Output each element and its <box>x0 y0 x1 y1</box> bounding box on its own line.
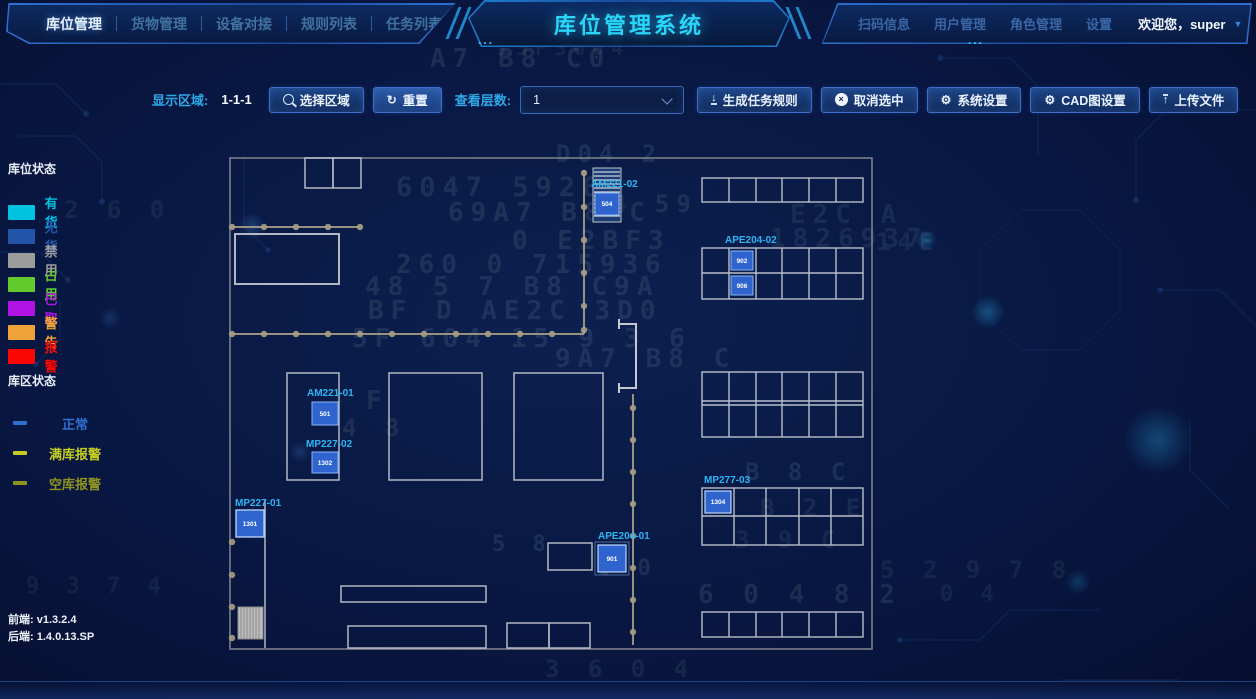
location-label-am221-02: AM221-02 <box>591 179 638 190</box>
chevron-down-icon <box>661 93 672 104</box>
nav-item-settings[interactable]: 设置 <box>1074 14 1124 33</box>
welcome-user-label: 欢迎您，super <box>1124 14 1233 33</box>
slot-box-501[interactable]: 501 <box>312 402 338 425</box>
cancel-circle-icon: × <box>835 93 848 106</box>
svg-text:902: 902 <box>737 258 748 265</box>
line-swatch <box>13 481 27 485</box>
gear-icon: ⚙ <box>1044 94 1055 106</box>
generate-task-rule-button[interactable]: ↓ 生成任务规则 <box>697 87 812 113</box>
bench-long-a <box>341 586 486 602</box>
door-bracket <box>619 319 636 393</box>
header-left-nav-panel: 库位管理 货物管理 设备对接 规则列表 任务列表 <box>6 3 458 44</box>
location-label-mp277-03: MP277-03 <box>704 475 751 486</box>
rack-row-bottom <box>702 612 863 637</box>
backend-version: 后端: 1.4.0.13.SP <box>8 629 94 646</box>
color-swatch <box>8 205 35 220</box>
svg-text:1302: 1302 <box>318 460 333 467</box>
svg-text:501: 501 <box>320 411 331 418</box>
footer-strip <box>0 681 1256 699</box>
header-dots-decor: ... <box>478 33 494 47</box>
download-icon: ↓ <box>711 94 717 106</box>
upload-icon: ↑ <box>1163 94 1169 106</box>
version-info: 前端: v1.3.2.4 后端: 1.4.0.13.SP <box>8 612 94 646</box>
room-center-c <box>514 373 603 480</box>
nav-item-role-management[interactable]: 角色管理 <box>998 14 1074 33</box>
slot-status-legend: 库位状态 有货 无货 禁用 占用 已取 警告 报警 <box>8 160 56 177</box>
nav-item-slot-management[interactable]: 库位管理 <box>32 14 116 34</box>
color-swatch <box>8 349 35 364</box>
legend-item-zone-empty-alarm: 空库报警 <box>8 472 123 494</box>
bench-square-a <box>507 623 549 648</box>
slot-box-504[interactable]: 504 <box>595 193 619 215</box>
header-right-nav-panel: 扫码信息 用户管理 角色管理 设置 欢迎您，super ▼ <box>806 3 1252 44</box>
nav-item-user-management[interactable]: 用户管理 <box>922 14 998 33</box>
gear-icon: ⚙ <box>941 94 952 106</box>
color-swatch <box>8 253 35 268</box>
location-label-mp227-02: MP227-02 <box>306 439 353 450</box>
view-layers-label: 查看层数: <box>455 90 511 109</box>
color-swatch <box>8 301 35 316</box>
svg-text:906: 906 <box>737 283 748 290</box>
warehouse-management-screen: { "header": { "title": "库位管理系统", "dots":… <box>0 0 1256 699</box>
location-label-ape204-01: APE204-01 <box>598 531 650 542</box>
warehouse-floor-plan[interactable]: 504 AM221-02 MP227-01 1301 AM221-01 501 … <box>228 156 874 652</box>
legend-item-zone-full-alarm: 满库报警 <box>8 442 123 464</box>
header-bar: 库位管理 货物管理 设备对接 规则列表 任务列表 库位管理系统 ... ... … <box>0 0 1256 48</box>
slot-box-901[interactable]: 901 <box>595 542 629 575</box>
display-area-label: 显示区域: <box>152 90 208 109</box>
nav-item-rule-list[interactable]: 规则列表 <box>287 14 371 34</box>
refresh-icon: ↻ <box>387 94 397 106</box>
room-top-left-a <box>305 158 333 188</box>
location-label-am221-01: AM221-01 <box>307 388 354 399</box>
toolbar: 显示区域: 1-1-1 选择区域 ↻ 重置 查看层数: 1 ↓ 生成任务规则 ×… <box>152 86 1238 113</box>
slot-box-902[interactable]: 902 <box>731 251 753 270</box>
location-label-ape204-02: APE204-02 <box>725 235 777 246</box>
bench-square-c <box>548 543 592 570</box>
slot-box-1302[interactable]: 1302 <box>312 452 338 473</box>
display-area-value: 1-1-1 <box>221 92 251 107</box>
rack-grid-ape204-02 <box>702 248 863 299</box>
nav-item-task-list[interactable]: 任务列表 <box>372 14 456 34</box>
color-swatch <box>8 277 35 292</box>
nav-item-device-docking[interactable]: 设备对接 <box>202 14 286 34</box>
room-top-left-b <box>333 158 361 188</box>
line-swatch <box>13 421 27 425</box>
cancel-selection-button[interactable]: × 取消选中 <box>821 87 918 113</box>
location-label-mp227-01: MP227-01 <box>235 498 282 509</box>
svg-text:504: 504 <box>602 201 613 208</box>
bench-long-b <box>348 626 486 648</box>
nav-item-scan-info[interactable]: 扫码信息 <box>846 14 922 33</box>
rack-row-top <box>702 178 863 202</box>
reset-button[interactable]: ↻ 重置 <box>373 87 442 113</box>
slot-box-1304[interactable]: 1304 <box>705 491 731 513</box>
slot-box-1301[interactable]: 1301 <box>236 510 264 537</box>
select-area-button[interactable]: 选择区域 <box>269 87 364 113</box>
system-settings-button[interactable]: ⚙ 系统设置 <box>927 87 1022 113</box>
upload-file-button[interactable]: ↑ 上传文件 <box>1149 87 1239 113</box>
zone-status-legend: 库区状态 正常 满库报警 空库报警 <box>8 372 56 389</box>
legend-item-alarm: 报警 <box>8 344 65 368</box>
elevator-block <box>238 607 263 639</box>
app-title: 库位管理系统 <box>468 8 790 40</box>
cad-settings-button[interactable]: ⚙ CAD图设置 <box>1030 87 1139 113</box>
bench-square-b <box>549 623 590 648</box>
search-icon <box>283 94 294 105</box>
zone-status-title: 库区状态 <box>8 372 56 389</box>
slot-status-title: 库位状态 <box>8 160 56 177</box>
view-layers-selected-value: 1 <box>533 93 540 107</box>
legend-item-zone-normal: 正常 <box>8 412 123 434</box>
svg-text:901: 901 <box>607 556 618 563</box>
line-swatch <box>13 451 27 455</box>
svg-text:1301: 1301 <box>243 521 258 528</box>
header-title-panel: 库位管理系统 <box>468 0 790 47</box>
color-swatch <box>8 229 35 244</box>
svg-text:1304: 1304 <box>711 499 726 506</box>
view-layers-select[interactable]: 1 <box>520 86 684 114</box>
slot-box-906[interactable]: 906 <box>731 276 753 295</box>
room-center-b <box>389 373 482 480</box>
rack-grid-middle <box>702 372 863 437</box>
interior-walls <box>230 170 633 645</box>
user-dropdown-arrow-icon[interactable]: ▼ <box>1233 19 1252 29</box>
nav-item-goods-management[interactable]: 货物管理 <box>117 14 201 34</box>
room-left <box>235 234 339 284</box>
color-swatch <box>8 325 35 340</box>
header-dots-decor: ... <box>968 33 984 47</box>
frontend-version: 前端: v1.3.2.4 <box>8 612 94 629</box>
